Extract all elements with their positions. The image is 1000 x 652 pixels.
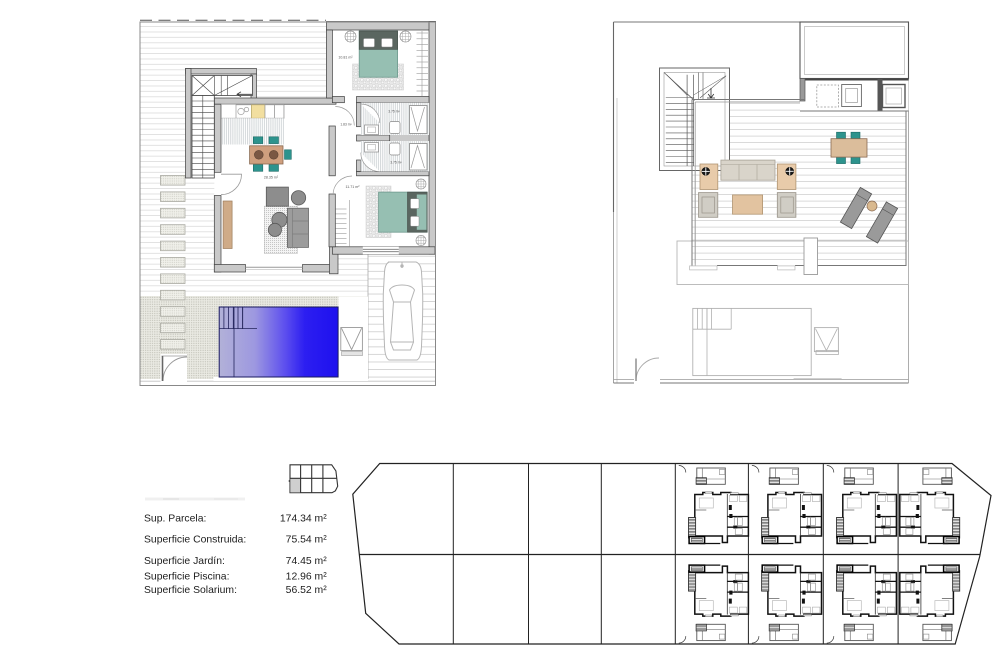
svg-text:3.75 m²: 3.75 m² (390, 161, 402, 165)
svg-text:174.34 m²: 174.34 m² (280, 513, 327, 524)
svg-text:10.81 m²: 10.81 m² (338, 56, 353, 60)
svg-text:Superficie Construida:: Superficie Construida: (144, 534, 246, 545)
svg-text:3.75 m²: 3.75 m² (388, 110, 400, 114)
svg-text:Superficie Piscina:: Superficie Piscina: (144, 572, 229, 583)
svg-text:1.83 m²: 1.83 m² (340, 123, 352, 127)
svg-text:12.96 m²: 12.96 m² (286, 572, 328, 583)
svg-text:28.35 m²: 28.35 m² (264, 176, 279, 180)
svg-text:Superficie Solarium:: Superficie Solarium: (144, 585, 237, 596)
svg-text:11.71 m²: 11.71 m² (346, 185, 361, 189)
svg-text:74.45 m²: 74.45 m² (286, 556, 328, 567)
svg-text:Superficie Jardín:: Superficie Jardín: (144, 556, 225, 567)
svg-text:56.52 m²: 56.52 m² (286, 585, 328, 596)
svg-text:Sup. Parcela:: Sup. Parcela: (144, 513, 206, 524)
svg-text:75.54 m²: 75.54 m² (286, 534, 328, 545)
